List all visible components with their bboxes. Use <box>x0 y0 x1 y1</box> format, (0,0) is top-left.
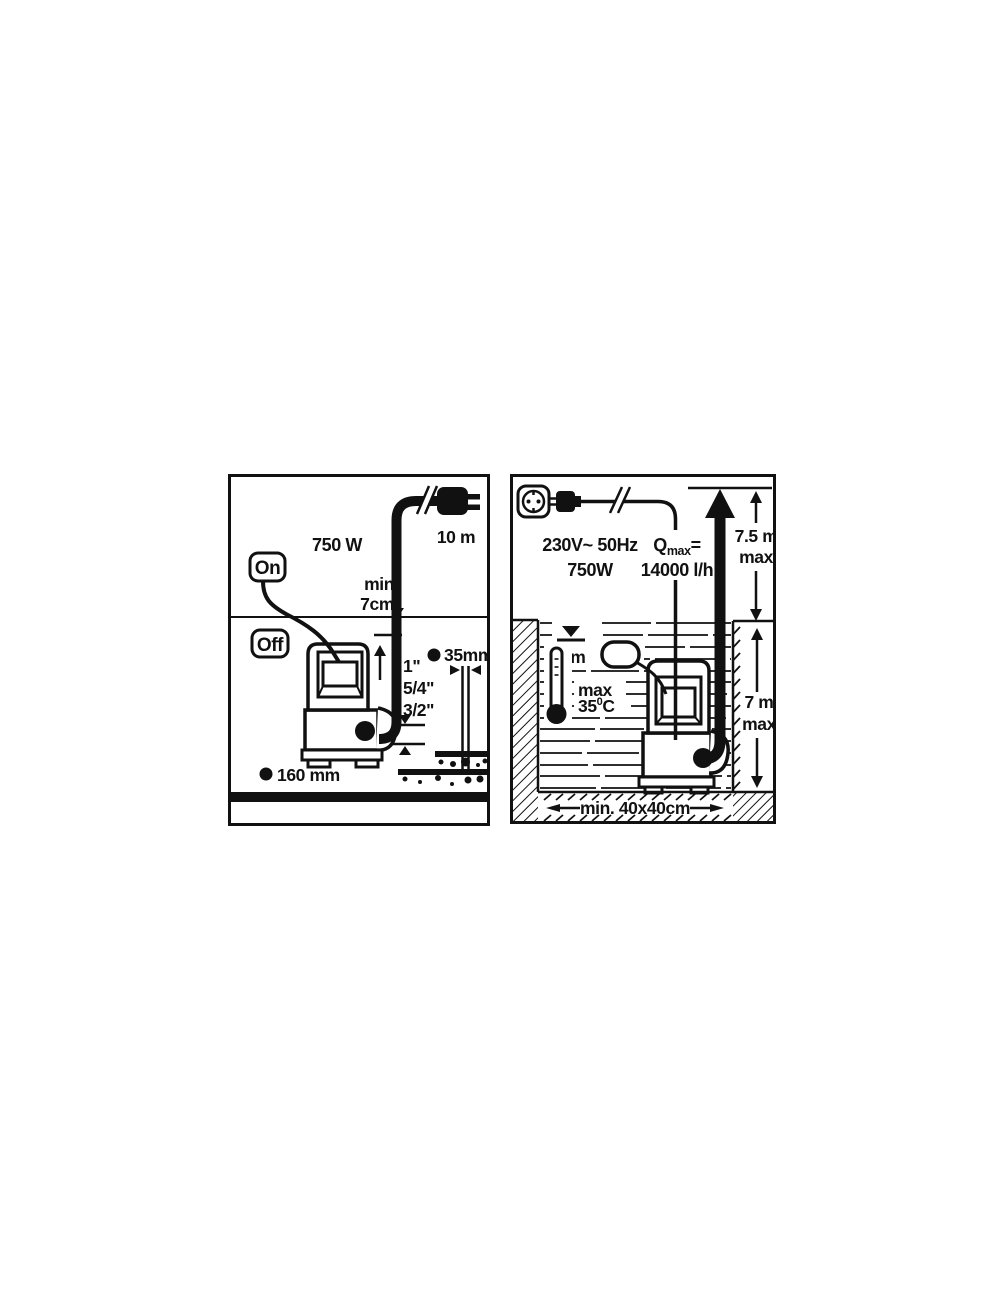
thread-size-1: 1" <box>403 656 420 676</box>
right-diagram-panel: 230V~ 50Hz 750W Qmax= 14000 l/h 7.5 m ma… <box>510 474 776 824</box>
socket-icon <box>518 486 549 517</box>
immersion-depth-value: 7 m <box>745 692 774 712</box>
diameter-symbol <box>260 768 273 781</box>
on-button: On <box>250 553 285 581</box>
immersion-depth-qualifier: max <box>742 714 776 734</box>
off-button: Off <box>252 630 288 657</box>
pump-footprint-label: 160 mm <box>277 765 340 785</box>
qmax-value: 14000 l/h <box>641 560 713 580</box>
min-depth-label-2: 7cm <box>360 594 394 614</box>
delivery-head-qualifier: max <box>739 547 773 567</box>
left-diagram-panel: 750 W min 7cm <box>228 474 490 826</box>
off-label: Off <box>257 635 284 656</box>
pump-instruction-sheet: 750 W min 7cm <box>0 0 1000 1300</box>
power-rating-label: 750 W <box>312 535 362 555</box>
pump-outlet-port <box>355 721 375 741</box>
on-label: On <box>255 558 281 579</box>
pit-size-label: min. 40x40cm <box>580 798 690 818</box>
float-switch-icon <box>598 638 644 670</box>
thermometer-icon <box>544 644 572 728</box>
mains-label-1: 230V~ 50Hz <box>542 535 638 555</box>
delivery-head-value: 7.5 m <box>735 526 776 546</box>
max-temperature-callout: max 350C <box>574 678 626 716</box>
ground-bar <box>231 792 487 802</box>
min-depth-label-1: min <box>364 574 394 594</box>
diameter-symbol <box>428 649 441 662</box>
mains-label-2: 750W <box>567 560 613 580</box>
pump-foot <box>356 760 378 767</box>
right-footing-hatch <box>733 792 773 821</box>
pit-left-wall <box>513 620 538 821</box>
thread-size-3: 3/2" <box>403 700 434 720</box>
hose-diameter-label: 35mm <box>444 645 490 665</box>
cable-length-label: 10 m <box>437 527 475 547</box>
thread-size-2: 5/4" <box>403 678 434 698</box>
pump-outlet-port <box>693 748 713 768</box>
